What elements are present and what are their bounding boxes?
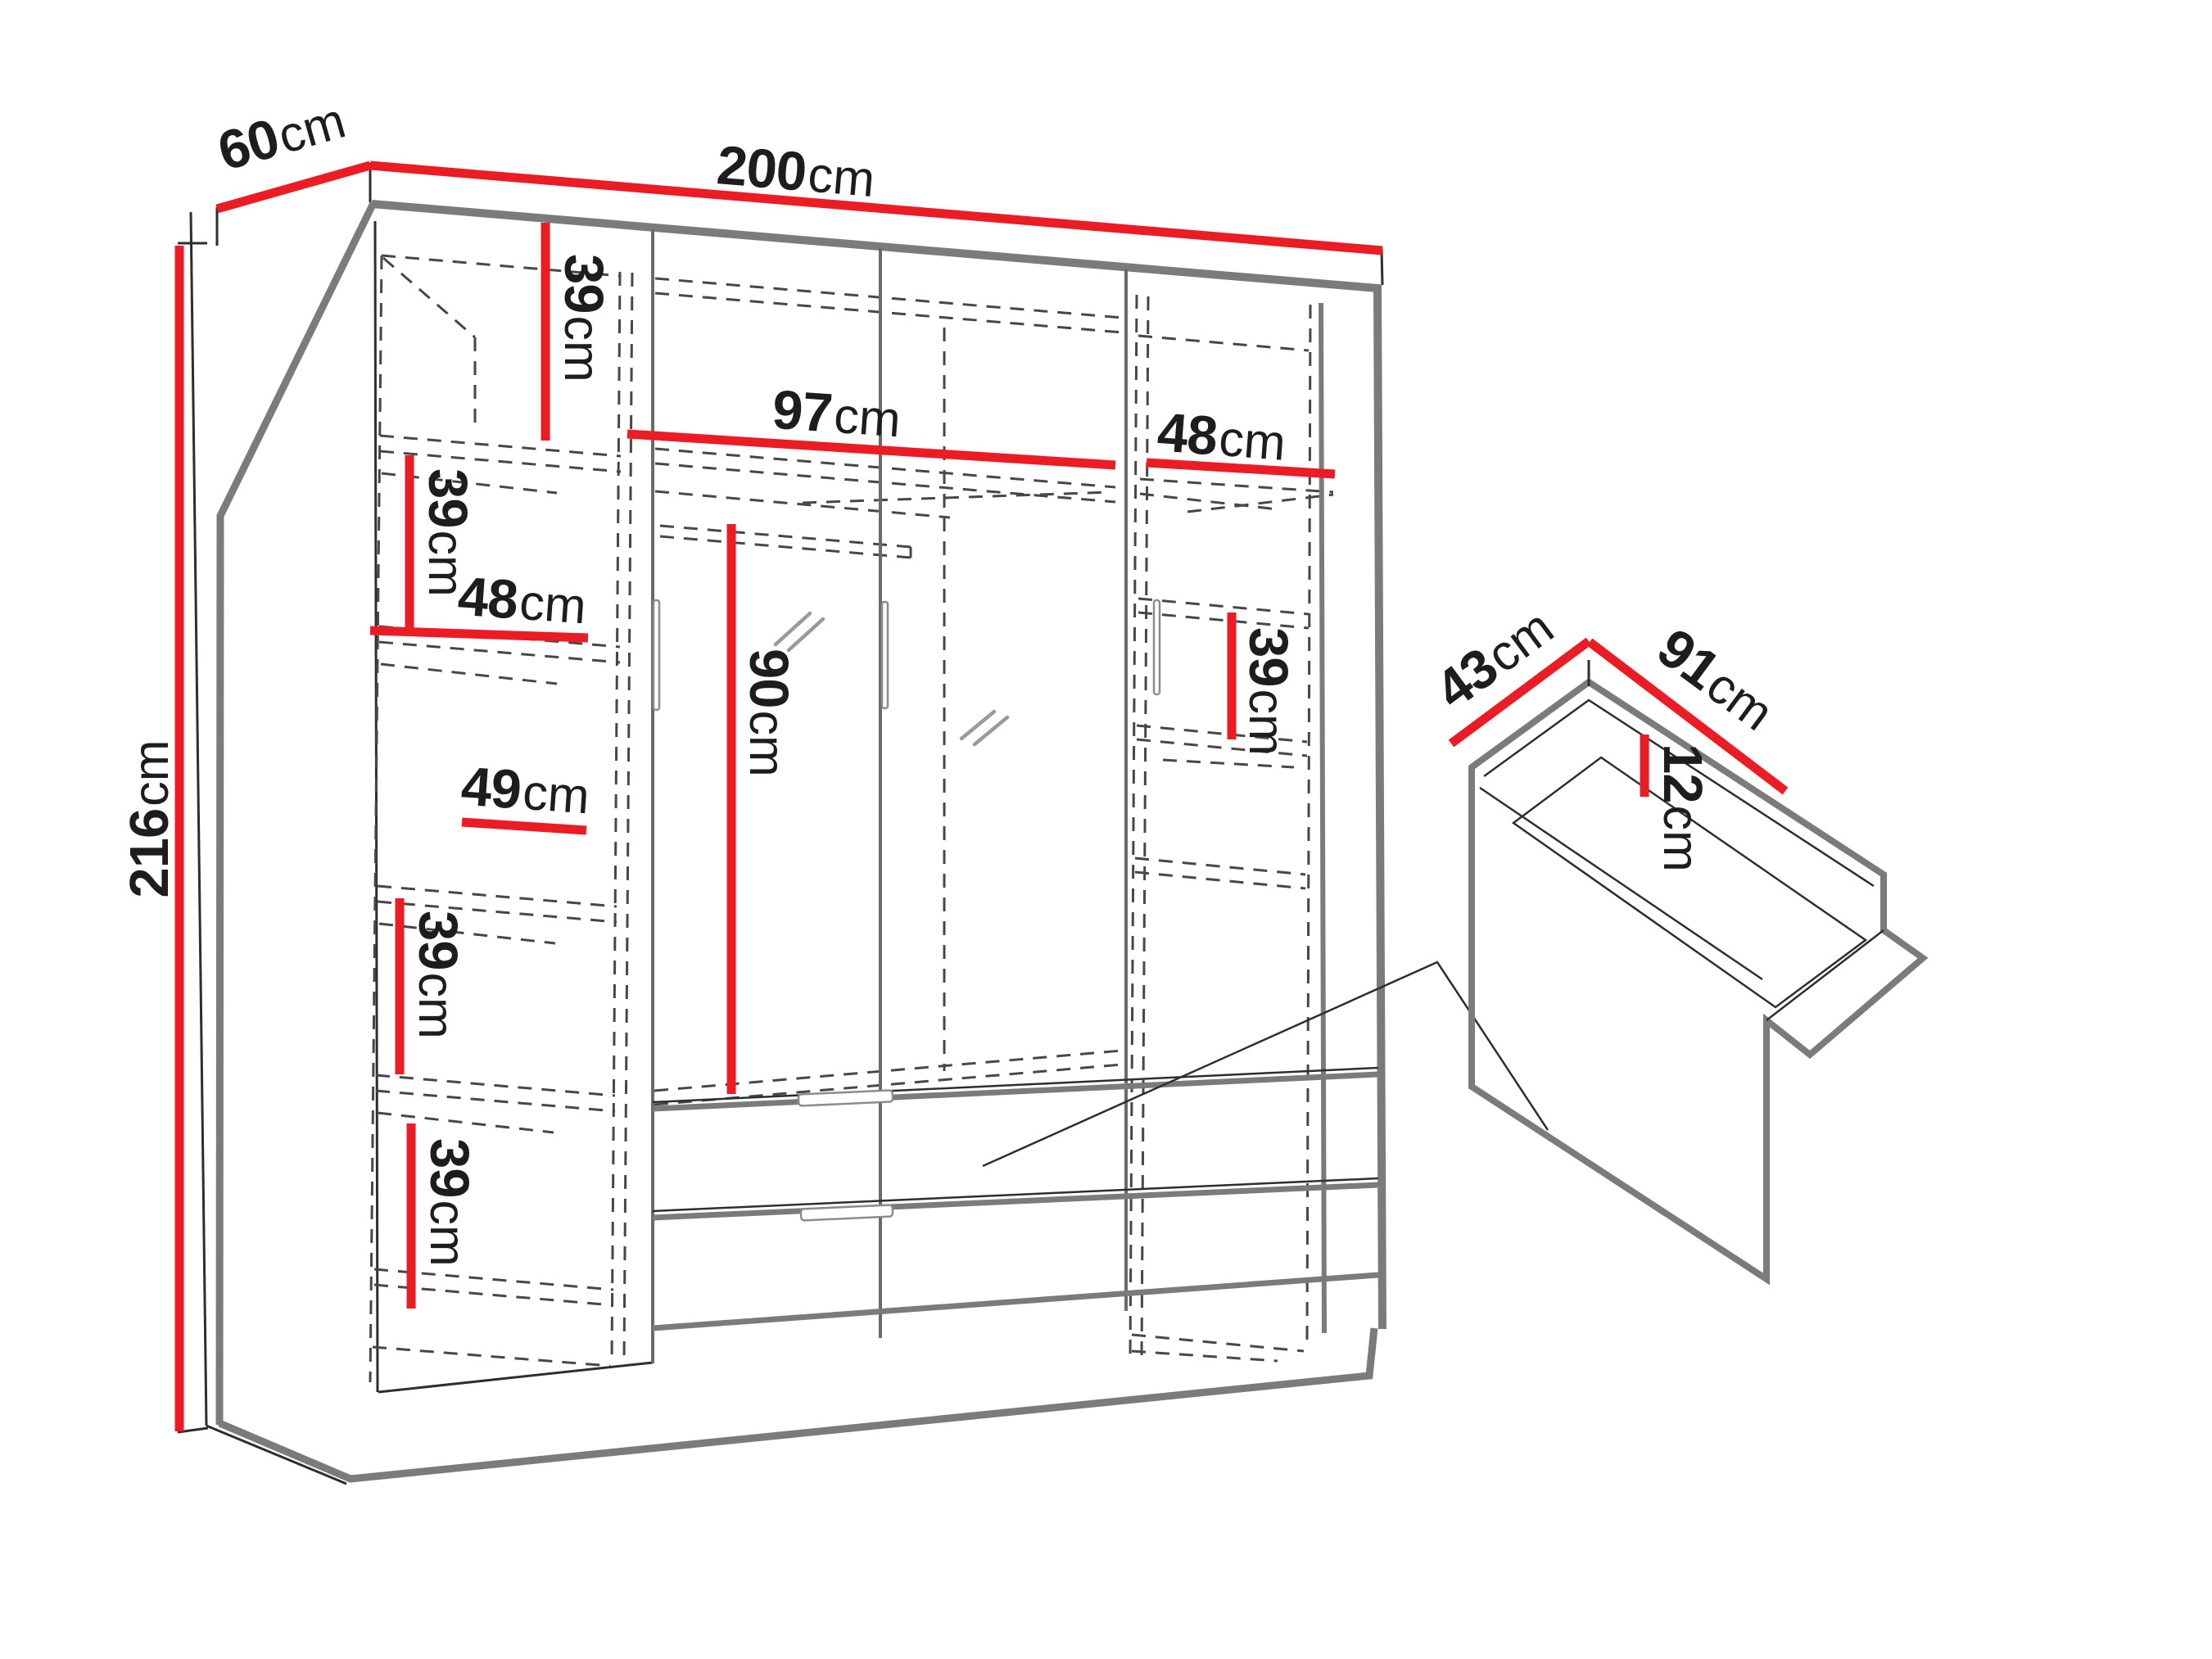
right-shelf-4 [1135,858,1305,888]
right-shelf-2 [1138,599,1309,628]
drawer-front-inner-edge [1480,788,1762,979]
depth-diagonal-top [383,258,475,337]
right-column-floor [1132,1335,1304,1361]
middle-floor-dash-a [654,1051,1122,1091]
right-wall-inner-edge [1321,303,1324,1333]
dim-label-drawer-height: 12cm [1652,744,1713,872]
wardrobe-front [653,229,1378,1363]
dim-label-drawer-width: 91cm [1646,617,1786,743]
drawers-bottom-shadow [653,1275,1378,1328]
dim-label-left-width-lower: 49cm [459,756,592,826]
dim-label-left-shelf-third: 39cm [407,911,468,1039]
plinth-bottom-edge [219,1328,1374,1479]
dim-label-left-width-upper: 48cm [456,566,589,636]
dim-label-left-shelf-bottom: 39cm [418,1138,480,1267]
dim-label-hanging-height: 90cm [738,649,799,777]
side-bottom-edge [206,1426,346,1484]
hanging-rail-dash [660,526,911,558]
right-shelf-1 [1140,479,1333,512]
door-handle-right [1154,600,1160,694]
middle-ceiling-dash-b [655,293,1122,332]
drawer2-top-shadow [653,1185,1378,1218]
mirror-mark-right-door [961,712,1007,744]
door-handle-middle [882,602,888,708]
front-left-edge [219,203,373,1425]
bottom-drawers [653,1068,1378,1328]
dim-label-right-width: 48cm [1156,401,1288,472]
furniture-dimension-diagram: 60cm 200cm 216cm 39cm 39cm 48cm 49cm 39c… [0,0,2212,1659]
left-partition-dash-a [612,272,620,1361]
leader-line [983,962,1548,1166]
dim-label-left-shelf-top: 39cm [553,254,614,382]
right-column-ceiling-dash [1138,336,1309,350]
drawer1-top-shadow [653,1074,1378,1109]
door-bottom-edge [378,1363,653,1392]
left-shelf-1 [380,436,621,493]
drawer-detail: 43cm 91cm 12cm [1424,595,1923,1279]
middle-ceiling-dash-a [655,278,1122,318]
dim-label-right-shelf: 39cm [1237,627,1299,756]
dim-label-height: 216cm [119,739,180,897]
mirror-mark-left-door [776,613,823,650]
dimension-lines [179,165,1382,1431]
side-panel-back-edge [191,212,206,1426]
drawer1-handle [798,1090,893,1105]
front-top-right-edge [372,204,1382,1329]
door-handle-left [654,600,659,710]
dim-label-depth: 60cm [211,88,351,183]
dim-label-drawer-depth: 43cm [1424,595,1564,721]
dim-line-left-width-49 [462,822,586,830]
dim-label-middle-shelf: 97cm [771,379,903,450]
dim-line-width-200 [370,165,1382,251]
drawer2-top-line [653,1178,1378,1211]
